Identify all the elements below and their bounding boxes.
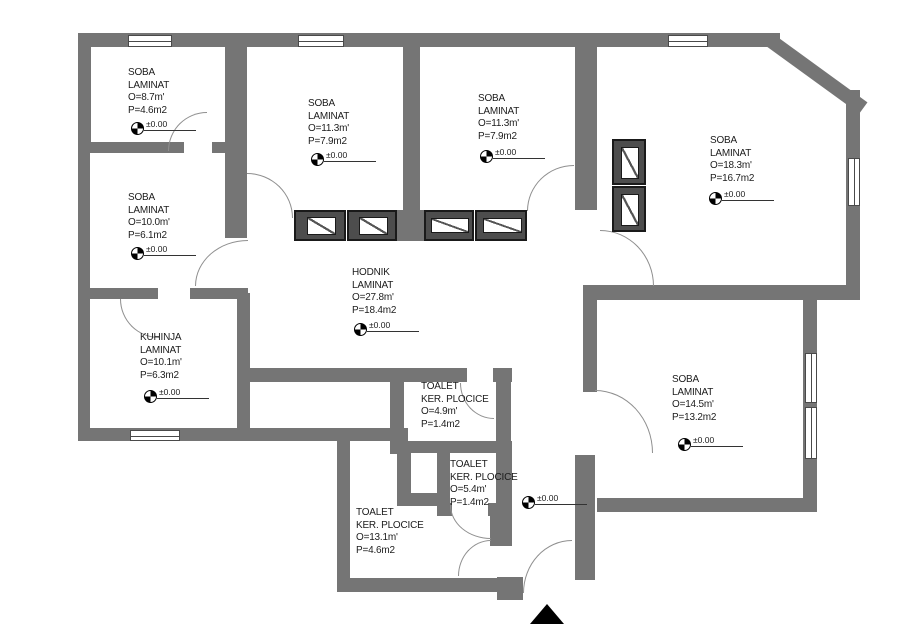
wall-left-3 bbox=[78, 299, 90, 441]
room-name: TOALET bbox=[356, 506, 424, 519]
wall-toilet3-bottom bbox=[337, 578, 507, 592]
wall-room1-right bbox=[225, 47, 247, 153]
benchmark-icon bbox=[131, 247, 144, 260]
benchmark-icon bbox=[522, 496, 535, 509]
door-arc-toilet2 bbox=[450, 505, 491, 539]
room-name: SOBA bbox=[710, 134, 754, 147]
wall-kitchen-bottom bbox=[78, 428, 408, 441]
elevation-underline bbox=[144, 130, 196, 131]
closet-door-pane bbox=[621, 147, 639, 179]
closet-door-pane bbox=[359, 217, 388, 235]
elevation-marker-soba-top-mid-1: ±0.00 bbox=[311, 153, 377, 165]
elevation-underline bbox=[722, 200, 774, 201]
room-floor: LAMINAT bbox=[140, 344, 182, 357]
window-icon-right bbox=[848, 158, 860, 206]
room-perimeter: O=18.3m' bbox=[710, 159, 754, 172]
wall-toilet1-bottom bbox=[390, 441, 512, 453]
elevation-marker-kuhinja: ±0.00 bbox=[144, 390, 210, 402]
elevation-marker-soba-top-left: ±0.00 bbox=[131, 122, 197, 134]
elevation-underline bbox=[157, 398, 209, 399]
room-label-kuhinja: KUHINJALAMINATO=10.1m'P=6.3m2 bbox=[140, 331, 182, 381]
room-floor: LAMINAT bbox=[352, 279, 396, 292]
room-label-toalet-3: TOALETKER. PLOCICEO=13.1m'P=4.6m2 bbox=[356, 506, 424, 556]
room-floor: KER. PLOCICE bbox=[421, 393, 489, 406]
elevation-marker-soba-right: ±0.00 bbox=[709, 192, 775, 204]
room-floor: LAMINAT bbox=[128, 204, 170, 217]
room-label-soba-top-mid-1: SOBALAMINATO=11.3m'P=7.9m2 bbox=[308, 97, 349, 147]
room-name: KUHINJA bbox=[140, 331, 182, 344]
elevation-underline bbox=[535, 504, 587, 505]
room-area: P=4.6m2 bbox=[356, 544, 424, 557]
elevation-underline bbox=[144, 255, 196, 256]
door-arc-soba-right bbox=[600, 230, 654, 286]
room-name: TOALET bbox=[421, 380, 489, 393]
elevation-marker-soba-bottom-right: ±0.00 bbox=[678, 438, 744, 450]
wall-entry-upper bbox=[583, 300, 597, 392]
room-label-toalet-2: TOALETKER. PLOCICEO=5.4m'P=1.4m2 bbox=[450, 458, 518, 508]
closet-door-pane bbox=[621, 194, 639, 226]
elevation-value: ±0.00 bbox=[693, 435, 714, 445]
benchmark-icon bbox=[678, 438, 691, 451]
window-icon-br-1 bbox=[805, 353, 817, 403]
door-arc-entrance bbox=[523, 540, 572, 593]
room-label-soba-left: SOBALAMINATO=10.0m'P=6.1m2 bbox=[128, 191, 170, 241]
entrance-arrow-icon bbox=[530, 604, 564, 624]
wall-entry-divider bbox=[490, 516, 512, 546]
elevation-marker-entry-hall: ±0.00 bbox=[522, 496, 588, 508]
room-perimeter: O=11.3m' bbox=[478, 117, 519, 130]
room-floor: LAMINAT bbox=[128, 79, 169, 92]
elevation-underline bbox=[493, 158, 545, 159]
room-name: HODNIK bbox=[352, 266, 396, 279]
elevation-marker-soba-left: ±0.00 bbox=[131, 247, 197, 259]
wall-toilet3-left bbox=[337, 440, 350, 592]
wall-toilet1-right bbox=[496, 382, 511, 442]
wall-toilet3-step-h bbox=[397, 493, 440, 506]
window-icon-br-2 bbox=[805, 407, 817, 459]
elevation-underline bbox=[324, 161, 376, 162]
room-name: TOALET bbox=[450, 458, 518, 471]
room-floor: LAMINAT bbox=[308, 110, 349, 123]
room-label-soba-bottom-right: SOBALAMINATO=14.5m'P=13.2m2 bbox=[672, 373, 716, 423]
elevation-value: ±0.00 bbox=[159, 387, 180, 397]
room-area: P=18.4m2 bbox=[352, 304, 396, 317]
closet-door-pane bbox=[431, 218, 469, 233]
room-perimeter: O=13.1m' bbox=[356, 531, 424, 544]
room-perimeter: O=10.0m' bbox=[128, 216, 170, 229]
room-name: SOBA bbox=[128, 66, 169, 79]
door-arc-soba-mid2 bbox=[527, 165, 574, 211]
room-floor: KER. PLOCICE bbox=[356, 519, 424, 532]
elevation-value: ±0.00 bbox=[146, 244, 167, 254]
elevation-underline bbox=[367, 331, 419, 332]
wall-closet-gap bbox=[397, 210, 424, 241]
window-icon-top-3 bbox=[668, 35, 708, 47]
closet-icon-2 bbox=[347, 210, 397, 241]
door-arc-soba-bottom-right bbox=[595, 390, 653, 453]
benchmark-icon bbox=[131, 122, 144, 135]
benchmark-icon bbox=[311, 153, 324, 166]
wall-mid-1 bbox=[403, 47, 420, 210]
wall-entry-lower bbox=[575, 455, 595, 580]
room-floor: LAMINAT bbox=[710, 147, 754, 160]
room-name: SOBA bbox=[672, 373, 716, 386]
room-perimeter: O=5.4m' bbox=[450, 483, 518, 496]
wall-left-1 bbox=[78, 33, 91, 153]
wall-br-bottom bbox=[597, 498, 817, 512]
elevation-value: ±0.00 bbox=[724, 189, 745, 199]
room-area: P=4.6m2 bbox=[128, 104, 169, 117]
wall-left-2 bbox=[78, 153, 90, 288]
room-floor: LAMINAT bbox=[672, 386, 716, 399]
room-perimeter: O=27.8m' bbox=[352, 291, 396, 304]
room-floor: KER. PLOCICE bbox=[450, 471, 518, 484]
wall-kitchen-top-a bbox=[78, 288, 158, 299]
room-area: P=6.1m2 bbox=[128, 229, 170, 242]
benchmark-icon bbox=[354, 323, 367, 336]
wall-entrance-corner bbox=[497, 577, 523, 600]
door-arc-toilet3 bbox=[458, 540, 491, 576]
room-label-soba-right: SOBALAMINATO=18.3m'P=16.7m2 bbox=[710, 134, 754, 184]
closet-icon-5 bbox=[612, 139, 646, 185]
closet-icon-3 bbox=[424, 210, 474, 241]
room-area: P=1.4m2 bbox=[450, 496, 518, 509]
elevation-value: ±0.00 bbox=[537, 493, 558, 503]
wall-soba-right-bottom bbox=[583, 285, 860, 300]
room-perimeter: O=8.7m' bbox=[128, 91, 169, 104]
elevation-marker-soba-top-mid-2: ±0.00 bbox=[480, 150, 546, 162]
room-label-soba-top-mid-2: SOBALAMINATO=11.3m'P=7.9m2 bbox=[478, 92, 519, 142]
window-icon-kitchen bbox=[130, 430, 180, 441]
elevation-value: ±0.00 bbox=[369, 320, 390, 330]
room-name: SOBA bbox=[308, 97, 349, 110]
wall-soba-left-right bbox=[225, 153, 247, 238]
elevation-underline bbox=[691, 446, 743, 447]
room-area: P=13.2m2 bbox=[672, 411, 716, 424]
room-label-hodnik: HODNIKLAMINATO=27.8m'P=18.4m2 bbox=[352, 266, 396, 316]
closet-icon-4 bbox=[475, 210, 527, 241]
wall-kitchen-right bbox=[237, 293, 250, 428]
elevation-value: ±0.00 bbox=[326, 150, 347, 160]
benchmark-icon bbox=[709, 192, 722, 205]
benchmark-icon bbox=[144, 390, 157, 403]
floor-plan: SOBALAMINATO=8.7m'P=4.6m2±0.00SOBALAMINA… bbox=[0, 0, 914, 640]
closet-door-pane bbox=[307, 217, 336, 235]
elevation-marker-hodnik: ±0.00 bbox=[354, 323, 420, 335]
closet-icon-1 bbox=[294, 210, 346, 241]
room-name: SOBA bbox=[128, 191, 170, 204]
room-floor: LAMINAT bbox=[478, 105, 519, 118]
room-perimeter: O=10.1m' bbox=[140, 356, 182, 369]
window-icon-top-2 bbox=[298, 35, 344, 47]
room-label-soba-top-left: SOBALAMINATO=8.7m'P=4.6m2 bbox=[128, 66, 169, 116]
room-name: SOBA bbox=[478, 92, 519, 105]
room-area: P=7.9m2 bbox=[308, 135, 349, 148]
wall-hodnik-bottom-b bbox=[493, 368, 512, 382]
door-arc-soba-left-lower bbox=[195, 240, 248, 286]
room-area: P=7.9m2 bbox=[478, 130, 519, 143]
room-perimeter: O=4.9m' bbox=[421, 405, 489, 418]
wall-mid-2 bbox=[575, 47, 597, 210]
closet-door-pane bbox=[483, 218, 522, 233]
elevation-value: ±0.00 bbox=[146, 119, 167, 129]
closet-icon-6 bbox=[612, 186, 646, 232]
room-perimeter: O=11.3m' bbox=[308, 122, 349, 135]
room-label-toalet-1: TOALETKER. PLOCICEO=4.9m'P=1.4m2 bbox=[421, 380, 489, 430]
benchmark-icon bbox=[480, 150, 493, 163]
elevation-value: ±0.00 bbox=[495, 147, 516, 157]
window-icon-top-1 bbox=[128, 35, 172, 47]
room-area: P=6.3m2 bbox=[140, 369, 182, 382]
door-arc-soba-left-upper bbox=[247, 173, 293, 218]
room-area: P=16.7m2 bbox=[710, 172, 754, 185]
room-area: P=1.4m2 bbox=[421, 418, 489, 431]
room-perimeter: O=14.5m' bbox=[672, 398, 716, 411]
